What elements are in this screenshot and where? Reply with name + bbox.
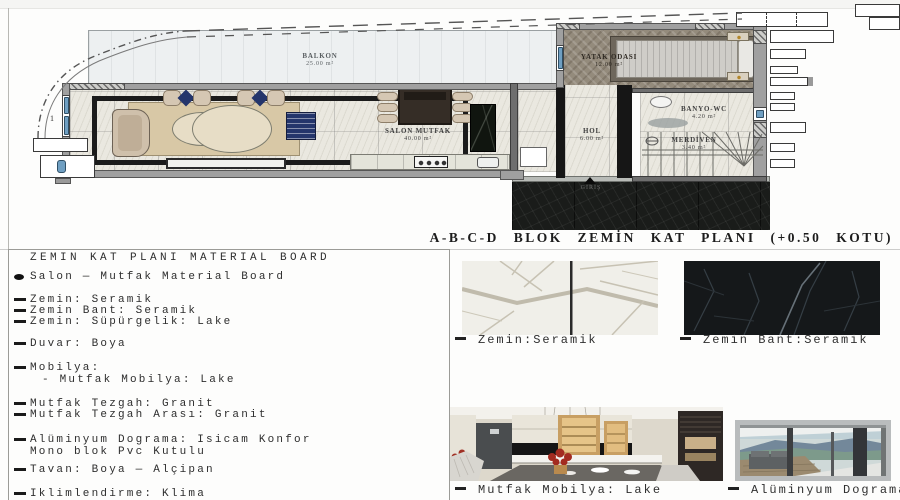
room-label-merdiven: MERDİVEN 3.40 m² bbox=[656, 136, 732, 152]
material-board-heading: ZEMIN KAT PLANI MATERIAL BOARD bbox=[30, 252, 330, 264]
dash-icon bbox=[728, 487, 739, 490]
dash-icon bbox=[14, 492, 26, 495]
photo-caption-aluminyum: Alüminyum Dograma bbox=[728, 483, 900, 497]
bullet-icon bbox=[14, 274, 24, 280]
photo-aluminyum-dograma bbox=[735, 420, 891, 481]
swatch-caption-zemin-bant: Zemin Bant:Seramik bbox=[680, 333, 869, 347]
room-label-salon: SALON MUTFAK 40.00 m² bbox=[372, 127, 464, 143]
room-label-yatak: YATAK ODASI 12.00 m² bbox=[566, 53, 652, 69]
dash-icon bbox=[14, 309, 26, 312]
room-label-hol: HOL 6.00 m² bbox=[574, 127, 610, 143]
dash-icon bbox=[14, 366, 26, 369]
plan-title: A-B-C-D BLOK ZEMİN KAT PLANI (+0.50 KOTU… bbox=[400, 230, 893, 246]
dash-icon bbox=[14, 320, 26, 323]
room-label-banyo: BANYO-WC 4.20 m² bbox=[662, 105, 746, 121]
photo-caption-mutfak: Mutfak Mobilya: Lake bbox=[455, 483, 662, 497]
swatch-caption-zemin: Zemin:Seramik bbox=[455, 333, 598, 347]
plan-linework bbox=[0, 0, 900, 250]
dash-icon bbox=[14, 342, 26, 345]
room-label-balkon: BALKON 25.00 m² bbox=[270, 52, 370, 68]
dash-icon bbox=[14, 468, 26, 471]
swatch-zemin-bant-seramik bbox=[684, 261, 880, 335]
swatch-zemin-seramik bbox=[462, 261, 658, 335]
dash-icon bbox=[455, 337, 466, 340]
dash-icon bbox=[455, 487, 466, 490]
dash-icon bbox=[680, 337, 691, 340]
photo-mutfak-mobilya bbox=[450, 407, 723, 481]
dash-icon bbox=[14, 402, 26, 405]
dash-icon bbox=[14, 298, 26, 301]
dash-icon bbox=[14, 438, 26, 441]
architectural-sheet: GİRİŞ 1 bbox=[0, 0, 900, 500]
dash-icon bbox=[14, 413, 26, 416]
